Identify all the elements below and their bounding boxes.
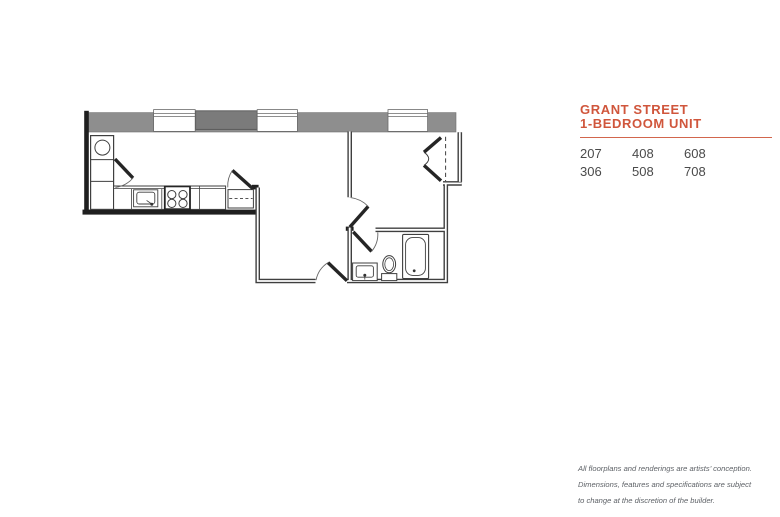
unit-number: 207 (580, 147, 632, 161)
unit-number: 608 (684, 147, 736, 161)
pantry-closet (228, 190, 253, 208)
doors (115, 159, 378, 281)
unit-number: 508 (632, 165, 684, 179)
disclaimer-line: Dimensions, features and specifications … (578, 477, 780, 493)
entry-door-swing-icon (316, 263, 347, 281)
floorplan-title-line2: 1-BEDROOM UNIT (580, 117, 780, 131)
unit-number: 408 (632, 147, 684, 161)
exterior-wall-band (86, 110, 456, 132)
floorplan-title-line1: GRANT STREET (580, 103, 780, 117)
unit-number: 306 (580, 165, 632, 179)
kitchen-sink-icon (134, 190, 158, 207)
vanity-sink-icon (353, 263, 378, 281)
floorplan-drawing (0, 0, 520, 320)
floorplan-sheet: GRANT STREET 1-BEDROOM UNIT 207 408 608 … (0, 0, 780, 517)
title-rule (580, 137, 772, 138)
bathtub-icon (403, 234, 429, 278)
stove-icon (165, 186, 190, 209)
washer-appliance-icon (91, 136, 114, 210)
bathroom-door-swing-icon (353, 232, 378, 252)
unit-numbers-table: 207 408 608 306 508 708 (580, 147, 780, 179)
unit-number: 708 (684, 165, 736, 179)
kitchen-area (91, 136, 254, 210)
disclaimer-line: All floorplans and renderings are artist… (578, 461, 780, 477)
unit-info-panel: GRANT STREET 1-BEDROOM UNIT 207 408 608 … (580, 103, 780, 179)
dark-wall-panel (196, 111, 258, 130)
window-icon (257, 110, 297, 132)
bifold-closet-icon (424, 137, 446, 181)
double-line-walls (258, 132, 462, 282)
window-icon (154, 110, 196, 132)
kitchen-door-swing-icon (115, 159, 133, 187)
disclaimer-text: All floorplans and renderings are artist… (578, 461, 780, 509)
disclaimer-line: to change at the discretion of the build… (578, 493, 780, 509)
pantry-door-swing-icon (228, 170, 253, 188)
toilet-icon (382, 256, 397, 281)
bedroom-door-swing-icon (350, 198, 368, 227)
window-icon (388, 110, 428, 132)
